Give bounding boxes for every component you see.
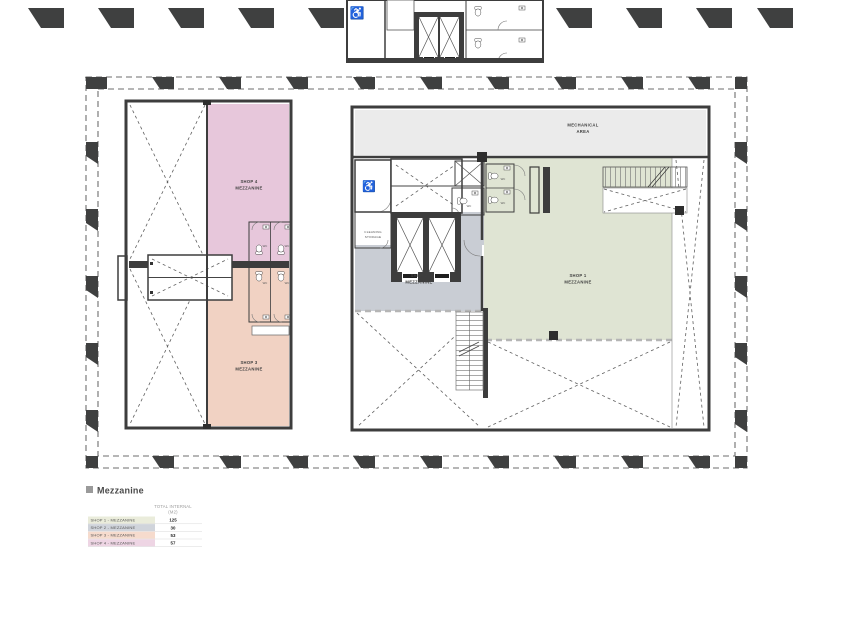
column-marker	[98, 8, 134, 28]
column-marker	[735, 410, 747, 432]
legend-label-shop2: SHOP 2 - MEZZANINE	[91, 525, 136, 530]
column-marker	[86, 343, 98, 365]
site-columns-bottom	[152, 456, 710, 468]
escalator-stair	[603, 167, 687, 187]
column-marker	[286, 456, 308, 468]
upper-core: ♿	[347, 0, 543, 62]
wall-column	[203, 100, 211, 105]
shop2-area-ext	[460, 212, 484, 245]
shop4-label-line2: MEZZANINE	[235, 186, 262, 191]
column-marker	[688, 77, 710, 89]
wc-label: WC	[263, 281, 268, 285]
shop2-label-line2: MEZZANINE	[405, 280, 432, 285]
legend-label-shop4: SHOP 4 - MEZZANINE	[91, 540, 136, 545]
cleaning-storage-label-line1: CLEANING	[364, 230, 382, 234]
column-marker	[487, 77, 509, 89]
site-columns-top	[85, 77, 710, 89]
toilet-icon	[278, 245, 284, 255]
wheelchair-icon: ♿	[350, 6, 365, 20]
column-marker	[152, 456, 174, 468]
cleaning-storage-room: CLEANING STORAGE	[355, 212, 391, 248]
floor-plan-drawing: ♿	[0, 0, 857, 634]
cleaning-storage-label-line2: STORAGE	[365, 235, 381, 239]
column-marker	[219, 456, 241, 468]
column-marker	[286, 77, 308, 89]
basin-icon	[504, 190, 510, 194]
column-marker	[735, 142, 747, 164]
legend-value-shop2: 30	[171, 525, 176, 530]
left-stair	[148, 255, 232, 300]
shop2-label-line1: SHOP 2	[410, 273, 427, 278]
column-marker	[86, 209, 98, 231]
basin-icon	[472, 191, 478, 195]
column-marker	[621, 77, 643, 89]
toilet-icon	[256, 245, 262, 255]
column-marker	[86, 142, 98, 164]
legend-row-shop3: SHOP 3 - MEZZANINE 53	[88, 532, 202, 539]
left-building: WC WC WC WC SHOP 4 MEZZANINE SHOP 3 MEZZ…	[118, 100, 292, 429]
legend-row-shop1: SHOP 1 - MEZZANINE 125	[88, 517, 202, 524]
wall-column	[477, 152, 487, 162]
column-marker	[353, 77, 375, 89]
shop1-label-line1: SHOP 1	[569, 273, 586, 278]
shop3-label-line1: SHOP 3	[240, 360, 257, 365]
mezzanine-bullet-icon	[86, 486, 93, 493]
legend-value-shop4: 57	[171, 541, 176, 546]
shop1-label-line2: MEZZANINE	[564, 280, 591, 285]
toilet-icon	[489, 197, 499, 203]
column-marker	[556, 8, 592, 28]
column-marker	[735, 343, 747, 365]
mechanical-label-line1: MECHANICAL	[567, 123, 598, 128]
column-marker	[554, 77, 576, 89]
upper-stair-bg	[387, 0, 414, 30]
mechanical-area	[355, 110, 706, 155]
wc-label: WC	[501, 177, 506, 181]
elevator-sill	[435, 274, 449, 278]
basin-icon	[519, 6, 525, 10]
shop4-label-line1: SHOP 4	[240, 179, 257, 184]
column-marker	[353, 456, 375, 468]
site-columns-left	[86, 142, 98, 432]
legend-row-shop2: SHOP 2 - MEZZANINE 30	[88, 524, 202, 531]
column-marker	[152, 77, 174, 89]
wall-pier	[543, 167, 550, 213]
column-marker	[28, 8, 64, 28]
vanity-counter	[252, 326, 289, 335]
corner-column	[735, 77, 747, 89]
corner-column	[735, 456, 747, 468]
wall-column	[549, 331, 558, 340]
wc-label: WC	[467, 204, 472, 208]
floor-plan-page: ♿	[0, 0, 857, 634]
toilet-icon	[475, 39, 481, 49]
column-marker	[168, 8, 204, 28]
stair-wall	[483, 308, 488, 398]
column-marker	[487, 456, 509, 468]
core-stair	[391, 159, 462, 213]
corner-column	[86, 77, 98, 89]
wall-column	[675, 206, 684, 215]
column-marker	[86, 276, 98, 298]
escalator-void	[603, 188, 687, 213]
basin-icon	[263, 225, 269, 229]
basin-icon	[504, 166, 510, 170]
right-building: WC WC ♿ WC	[352, 107, 709, 430]
basin-icon	[519, 38, 525, 42]
shop3-label-line2: MEZZANINE	[235, 367, 262, 372]
door-arc	[378, 198, 391, 212]
wc-label: WC	[285, 281, 290, 285]
column-marker	[554, 456, 576, 468]
column-marker	[238, 8, 274, 28]
upper-core-bottom-wall	[347, 58, 543, 62]
legend-header-line2: (M2)	[168, 510, 178, 515]
wc-label: WC	[501, 201, 506, 205]
column-marker	[621, 456, 643, 468]
column-marker	[420, 456, 442, 468]
wall-column	[203, 424, 211, 429]
wc-label: WC	[285, 244, 290, 248]
toilet-icon	[256, 272, 262, 282]
toilet-icon	[278, 272, 284, 282]
column-marker	[626, 8, 662, 28]
legend-row-shop4: SHOP 4 - MEZZANINE 57	[88, 539, 202, 546]
mechanical-label-line2: AREA	[576, 129, 589, 134]
legend: Mezzanine TOTAL INTERNAL (M2) SHOP 1 - M…	[86, 486, 202, 547]
column-marker	[735, 276, 747, 298]
legend-value-shop3: 53	[171, 533, 176, 538]
column-marker	[219, 77, 241, 89]
column-marker	[696, 8, 732, 28]
legend-label-shop1: SHOP 1 - MEZZANINE	[91, 518, 136, 523]
legend-value-shop1: 125	[169, 518, 177, 523]
door-arc	[498, 21, 507, 30]
legend-title: Mezzanine	[97, 486, 144, 496]
legend-header-line1: TOTAL INTERNAL	[154, 504, 192, 509]
bottom-stair	[456, 308, 488, 398]
wc-label: WC	[263, 244, 268, 248]
column-marker	[735, 209, 747, 231]
basin-icon	[263, 315, 269, 319]
elevators	[391, 212, 461, 282]
corner-column	[86, 456, 98, 468]
column-marker	[420, 77, 442, 89]
toilet-icon	[489, 173, 499, 179]
column-marker	[308, 8, 344, 28]
legend-label-shop3: SHOP 3 - MEZZANINE	[91, 533, 136, 538]
column-marker	[757, 8, 793, 28]
wheelchair-icon: ♿	[362, 180, 376, 193]
toilet-icon	[475, 7, 481, 17]
upper-floor-fragment: ♿	[28, 0, 793, 62]
column-marker	[86, 410, 98, 432]
column-marker	[688, 456, 710, 468]
site-columns-right	[735, 142, 747, 432]
